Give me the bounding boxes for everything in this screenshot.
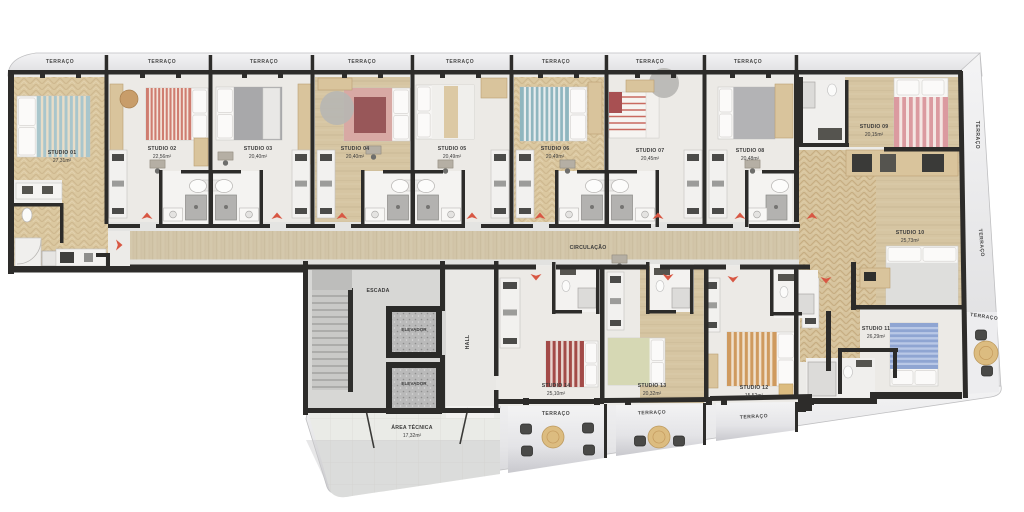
svg-text:STUDIO 02: STUDIO 02 <box>148 146 177 152</box>
svg-text:STUDIO 12: STUDIO 12 <box>740 385 769 391</box>
svg-text:TERRAÇO: TERRAÇO <box>446 59 474 65</box>
svg-text:TERRAÇO: TERRAÇO <box>636 59 664 65</box>
svg-text:CIRCULAÇÃO: CIRCULAÇÃO <box>570 244 607 251</box>
svg-text:STUDIO 05: STUDIO 05 <box>438 146 467 152</box>
svg-text:TERRAÇO: TERRAÇO <box>542 59 570 65</box>
svg-text:ELEVADOR: ELEVADOR <box>401 327 427 332</box>
svg-text:20,49m²: 20,49m² <box>546 154 565 160</box>
svg-text:27,31m²: 27,31m² <box>53 158 72 164</box>
svg-text:ÁREA TÉCNICA: ÁREA TÉCNICA <box>391 423 432 431</box>
svg-text:25,73m²: 25,73m² <box>901 238 920 244</box>
svg-text:STUDIO 04: STUDIO 04 <box>341 146 370 152</box>
svg-text:20,48m²: 20,48m² <box>741 156 760 162</box>
svg-text:STUDIO 14: STUDIO 14 <box>542 383 571 389</box>
svg-text:TERRAÇO: TERRAÇO <box>542 411 570 417</box>
svg-text:HALL: HALL <box>465 334 471 349</box>
svg-text:20,45m²: 20,45m² <box>641 156 660 162</box>
svg-text:ELEVADOR: ELEVADOR <box>401 381 427 386</box>
svg-text:20,49m²: 20,49m² <box>443 154 462 160</box>
svg-text:STUDIO 08: STUDIO 08 <box>736 148 765 154</box>
svg-text:STUDIO 01: STUDIO 01 <box>48 150 77 156</box>
svg-text:TERRAÇO: TERRAÇO <box>250 59 278 65</box>
svg-text:STUDIO 07: STUDIO 07 <box>636 148 665 154</box>
svg-text:26,29m²: 26,29m² <box>867 334 886 340</box>
svg-text:STUDIO 13: STUDIO 13 <box>638 383 667 389</box>
svg-text:17,32m²: 17,32m² <box>403 433 422 439</box>
svg-text:STUDIO 10: STUDIO 10 <box>896 230 925 236</box>
svg-text:20,40m²: 20,40m² <box>346 154 365 160</box>
svg-text:STUDIO 03: STUDIO 03 <box>244 146 273 152</box>
svg-text:ESCADA: ESCADA <box>366 288 389 294</box>
svg-text:STUDIO 09: STUDIO 09 <box>860 124 889 130</box>
svg-text:22,56m²: 22,56m² <box>153 154 172 160</box>
svg-text:TERRAÇO: TERRAÇO <box>974 121 980 149</box>
svg-text:TERRAÇO: TERRAÇO <box>734 59 762 65</box>
svg-text:20,15m²: 20,15m² <box>865 132 884 138</box>
svg-text:TERRAÇO: TERRAÇO <box>638 410 666 417</box>
svg-text:15,52m²: 15,52m² <box>745 393 764 399</box>
svg-text:TERRAÇO: TERRAÇO <box>46 59 74 65</box>
svg-text:STUDIO 06: STUDIO 06 <box>541 146 570 152</box>
svg-text:STUDIO 11: STUDIO 11 <box>862 326 890 332</box>
svg-text:20,40m²: 20,40m² <box>249 154 268 160</box>
svg-text:25,10m²: 25,10m² <box>547 391 566 397</box>
svg-text:20,32m²: 20,32m² <box>643 391 662 397</box>
svg-text:TERRAÇO: TERRAÇO <box>148 59 176 65</box>
svg-text:TERRAÇO: TERRAÇO <box>348 59 376 65</box>
